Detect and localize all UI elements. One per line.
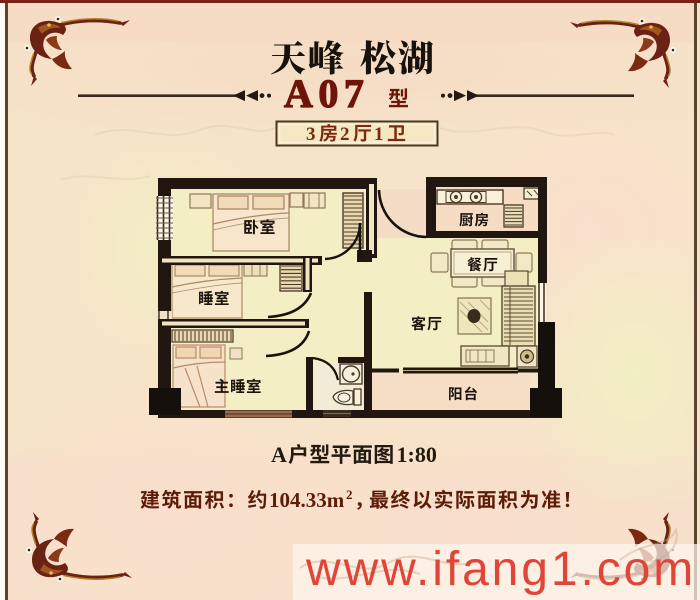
svg-text:A: A (271, 442, 287, 467)
svg-text:www.ifang1.com: www.ifang1.com (305, 543, 696, 596)
svg-text:1: 1 (374, 124, 384, 145)
svg-text:1:80: 1:80 (397, 442, 437, 467)
svg-text:A07: A07 (284, 71, 369, 116)
svg-text:3: 3 (306, 124, 316, 145)
svg-text:2: 2 (346, 487, 353, 502)
svg-text:2: 2 (340, 124, 350, 145)
svg-text:104.33m: 104.33m (269, 488, 345, 512)
